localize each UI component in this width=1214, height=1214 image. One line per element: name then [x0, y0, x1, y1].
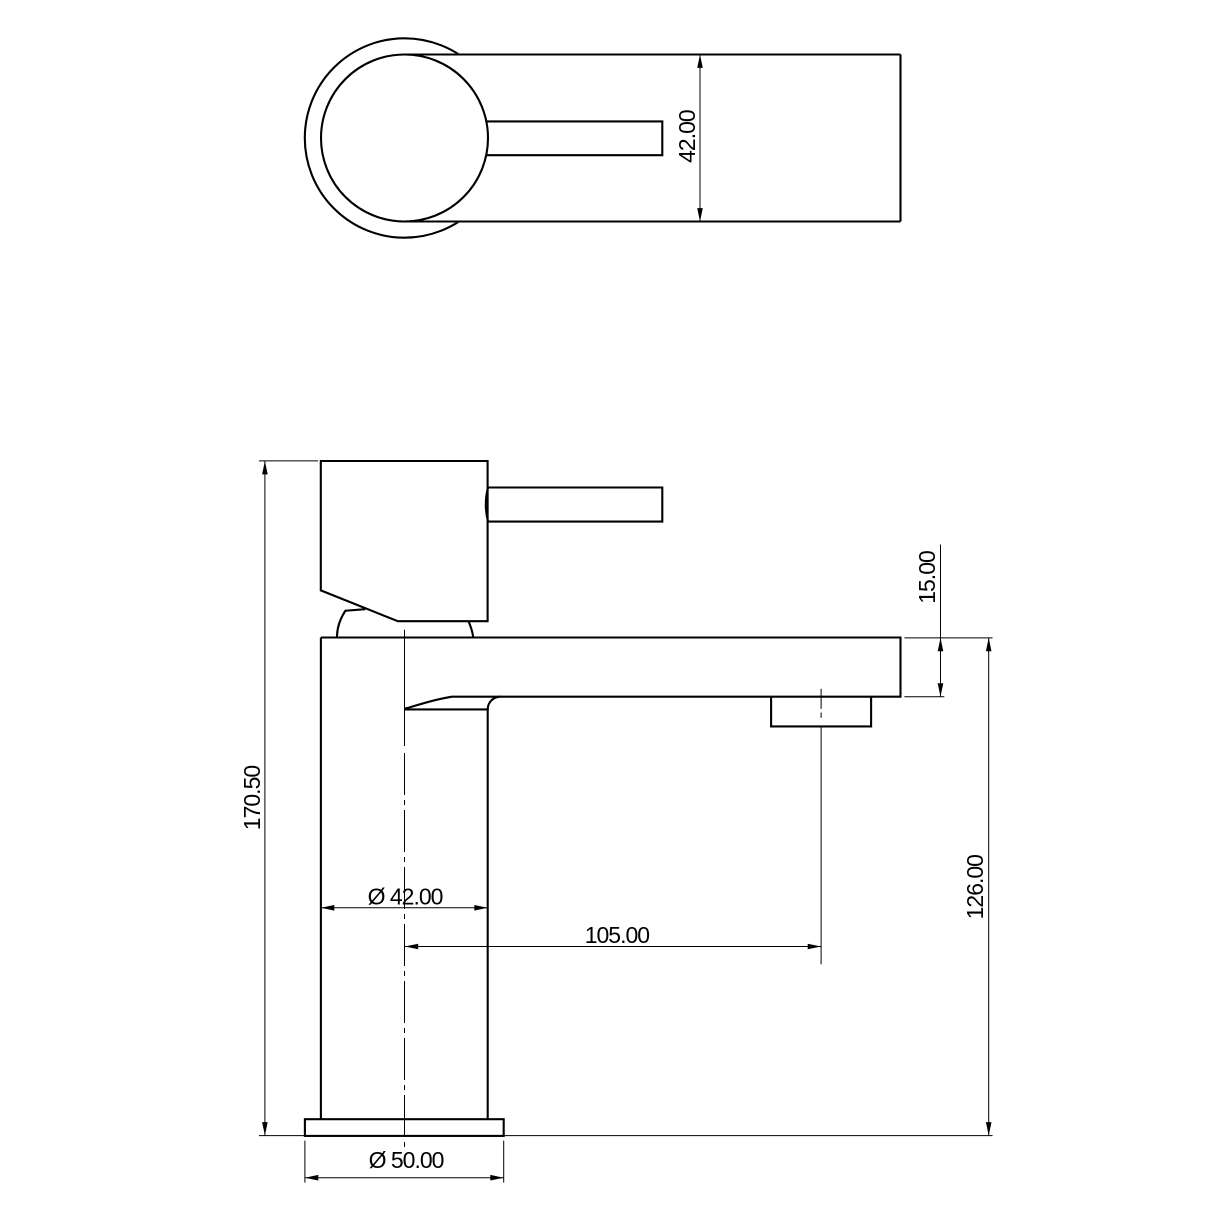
svg-text:105.00: 105.00	[585, 922, 650, 948]
svg-text:Ø 50.00: Ø 50.00	[369, 1147, 444, 1173]
svg-text:170.50: 170.50	[239, 766, 265, 831]
svg-text:15.00: 15.00	[914, 551, 940, 604]
svg-text:126.00: 126.00	[962, 855, 988, 920]
svg-text:Ø 42.00: Ø 42.00	[368, 884, 443, 910]
svg-text:42.00: 42.00	[674, 110, 700, 163]
